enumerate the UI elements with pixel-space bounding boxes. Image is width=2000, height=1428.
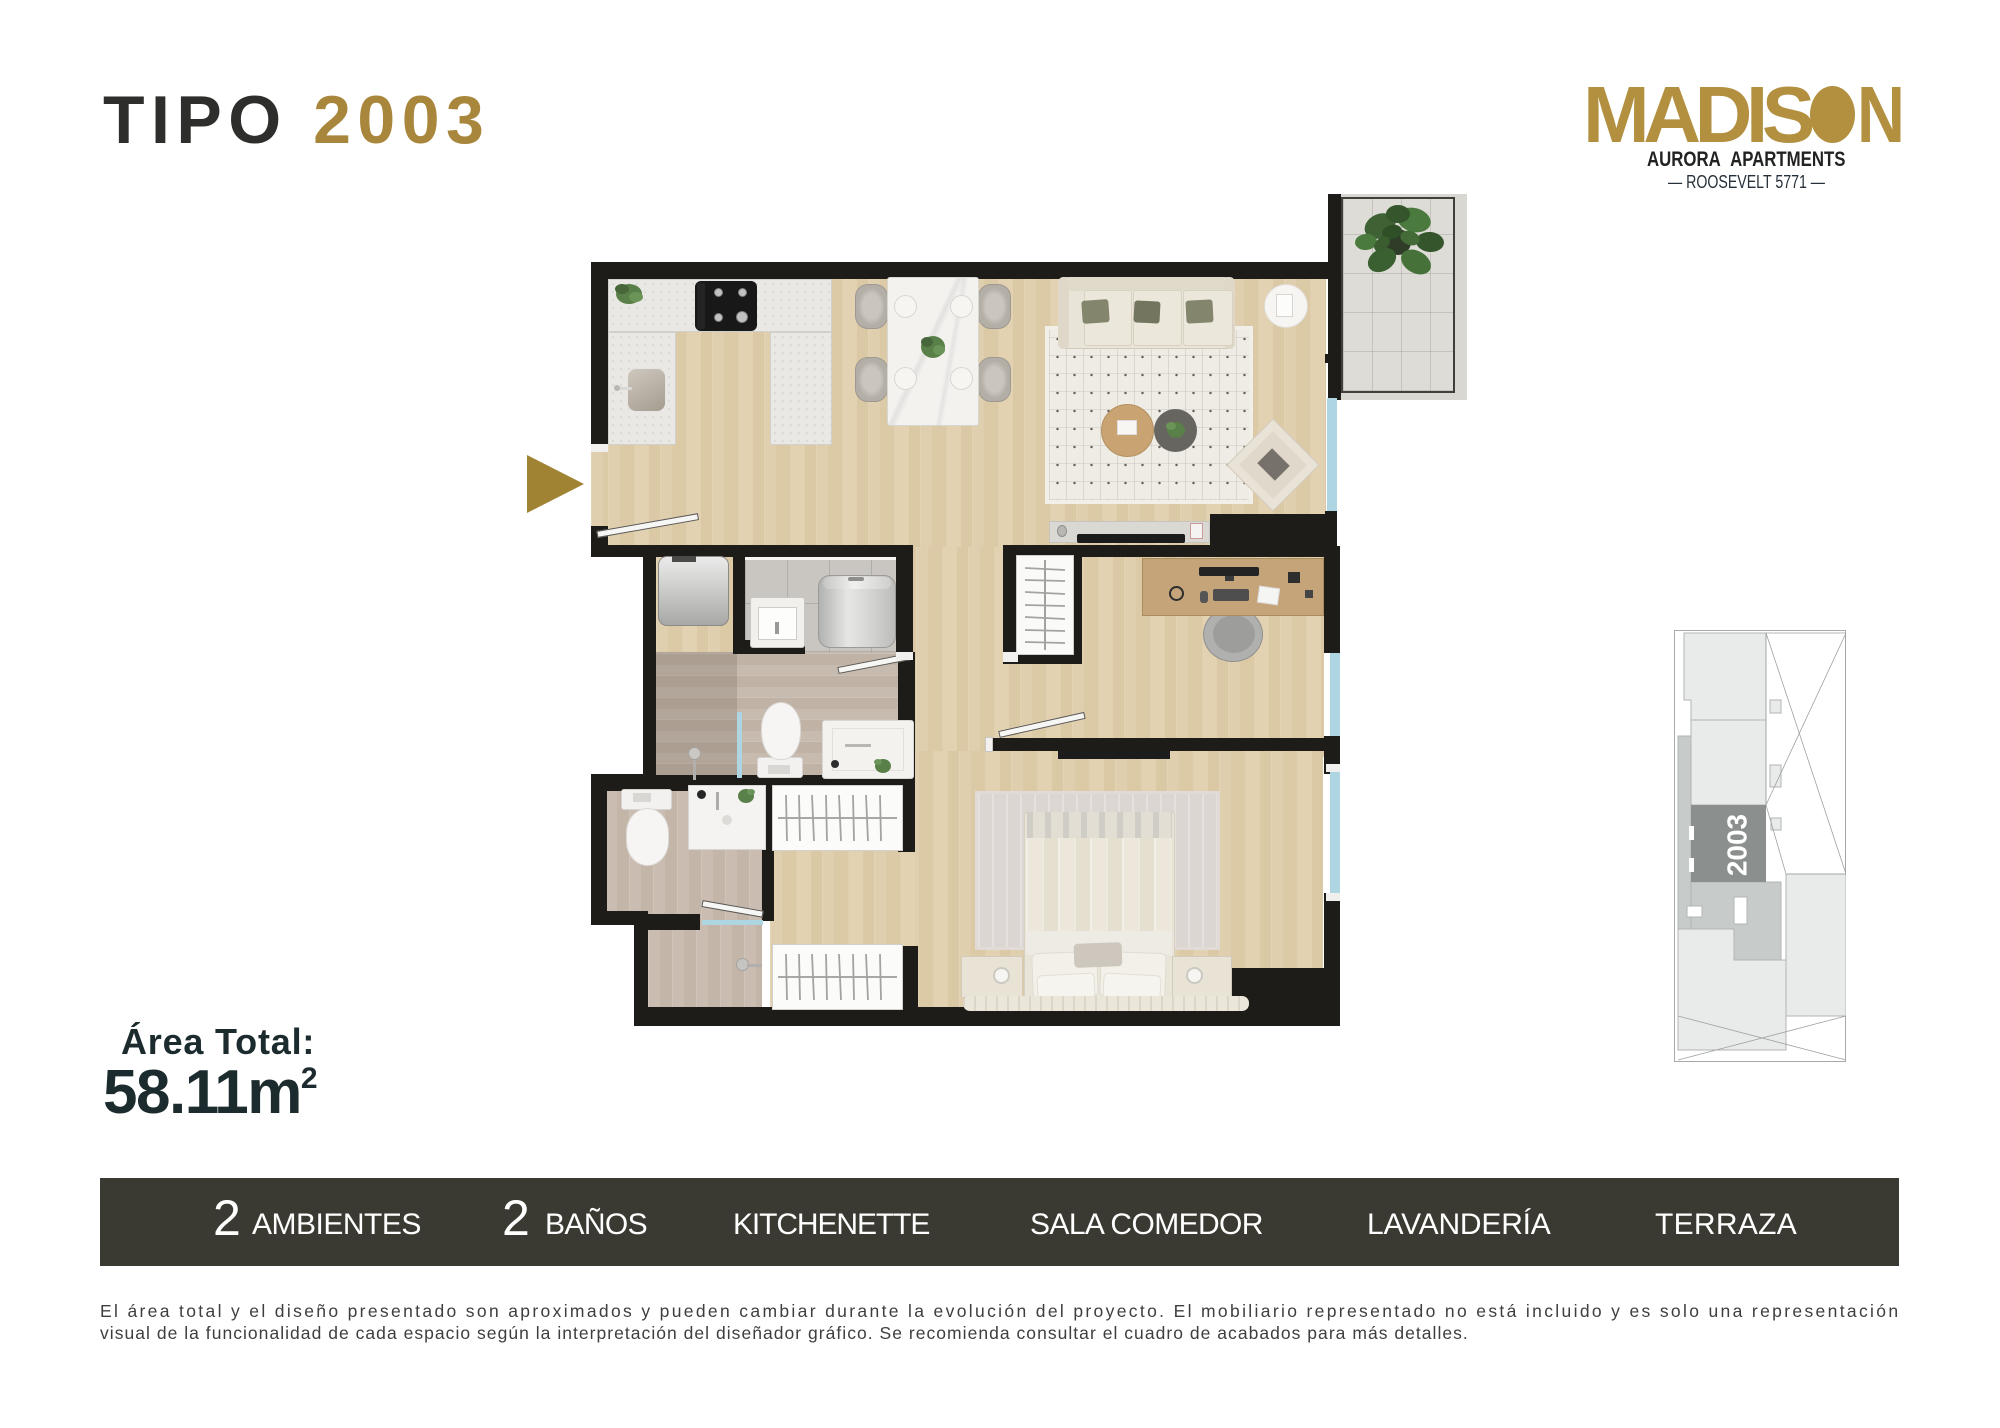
- svg-text:2003: 2003: [1722, 814, 1753, 876]
